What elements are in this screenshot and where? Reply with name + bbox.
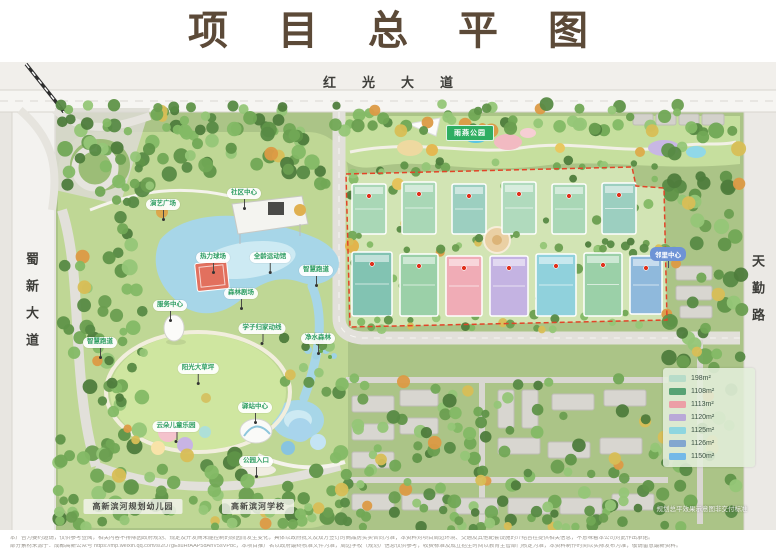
site-plan-map: 红光大道 蜀新大道 天勤路 雨燕公园 邻里中心 演艺广场 社区中心 热力球场 全… (0, 62, 776, 530)
page-title: 项目总平图 (138, 11, 638, 51)
footer-disclaimer: 本广告为要约邀请，仅供参考查阅，相关内容不排除因政府规划、规定及开发商未能控制的… (0, 530, 776, 560)
site-plan-drawing (0, 62, 776, 560)
disclaimer-line-1: 本广告为要约邀请，仅供参考查阅，相关内容不排除因政府规划、规定及开发商未能控制的… (10, 536, 766, 542)
title-band: 项目总平图 (0, 0, 776, 62)
sports-court (195, 260, 230, 291)
master-plan-page: 项目总平图 (0, 0, 776, 560)
disclaimer-line-2: 部分素材来源于：成都高新公众号 https://mp.weixin.qq.com… (10, 544, 766, 550)
egg-pavilion (164, 315, 184, 341)
